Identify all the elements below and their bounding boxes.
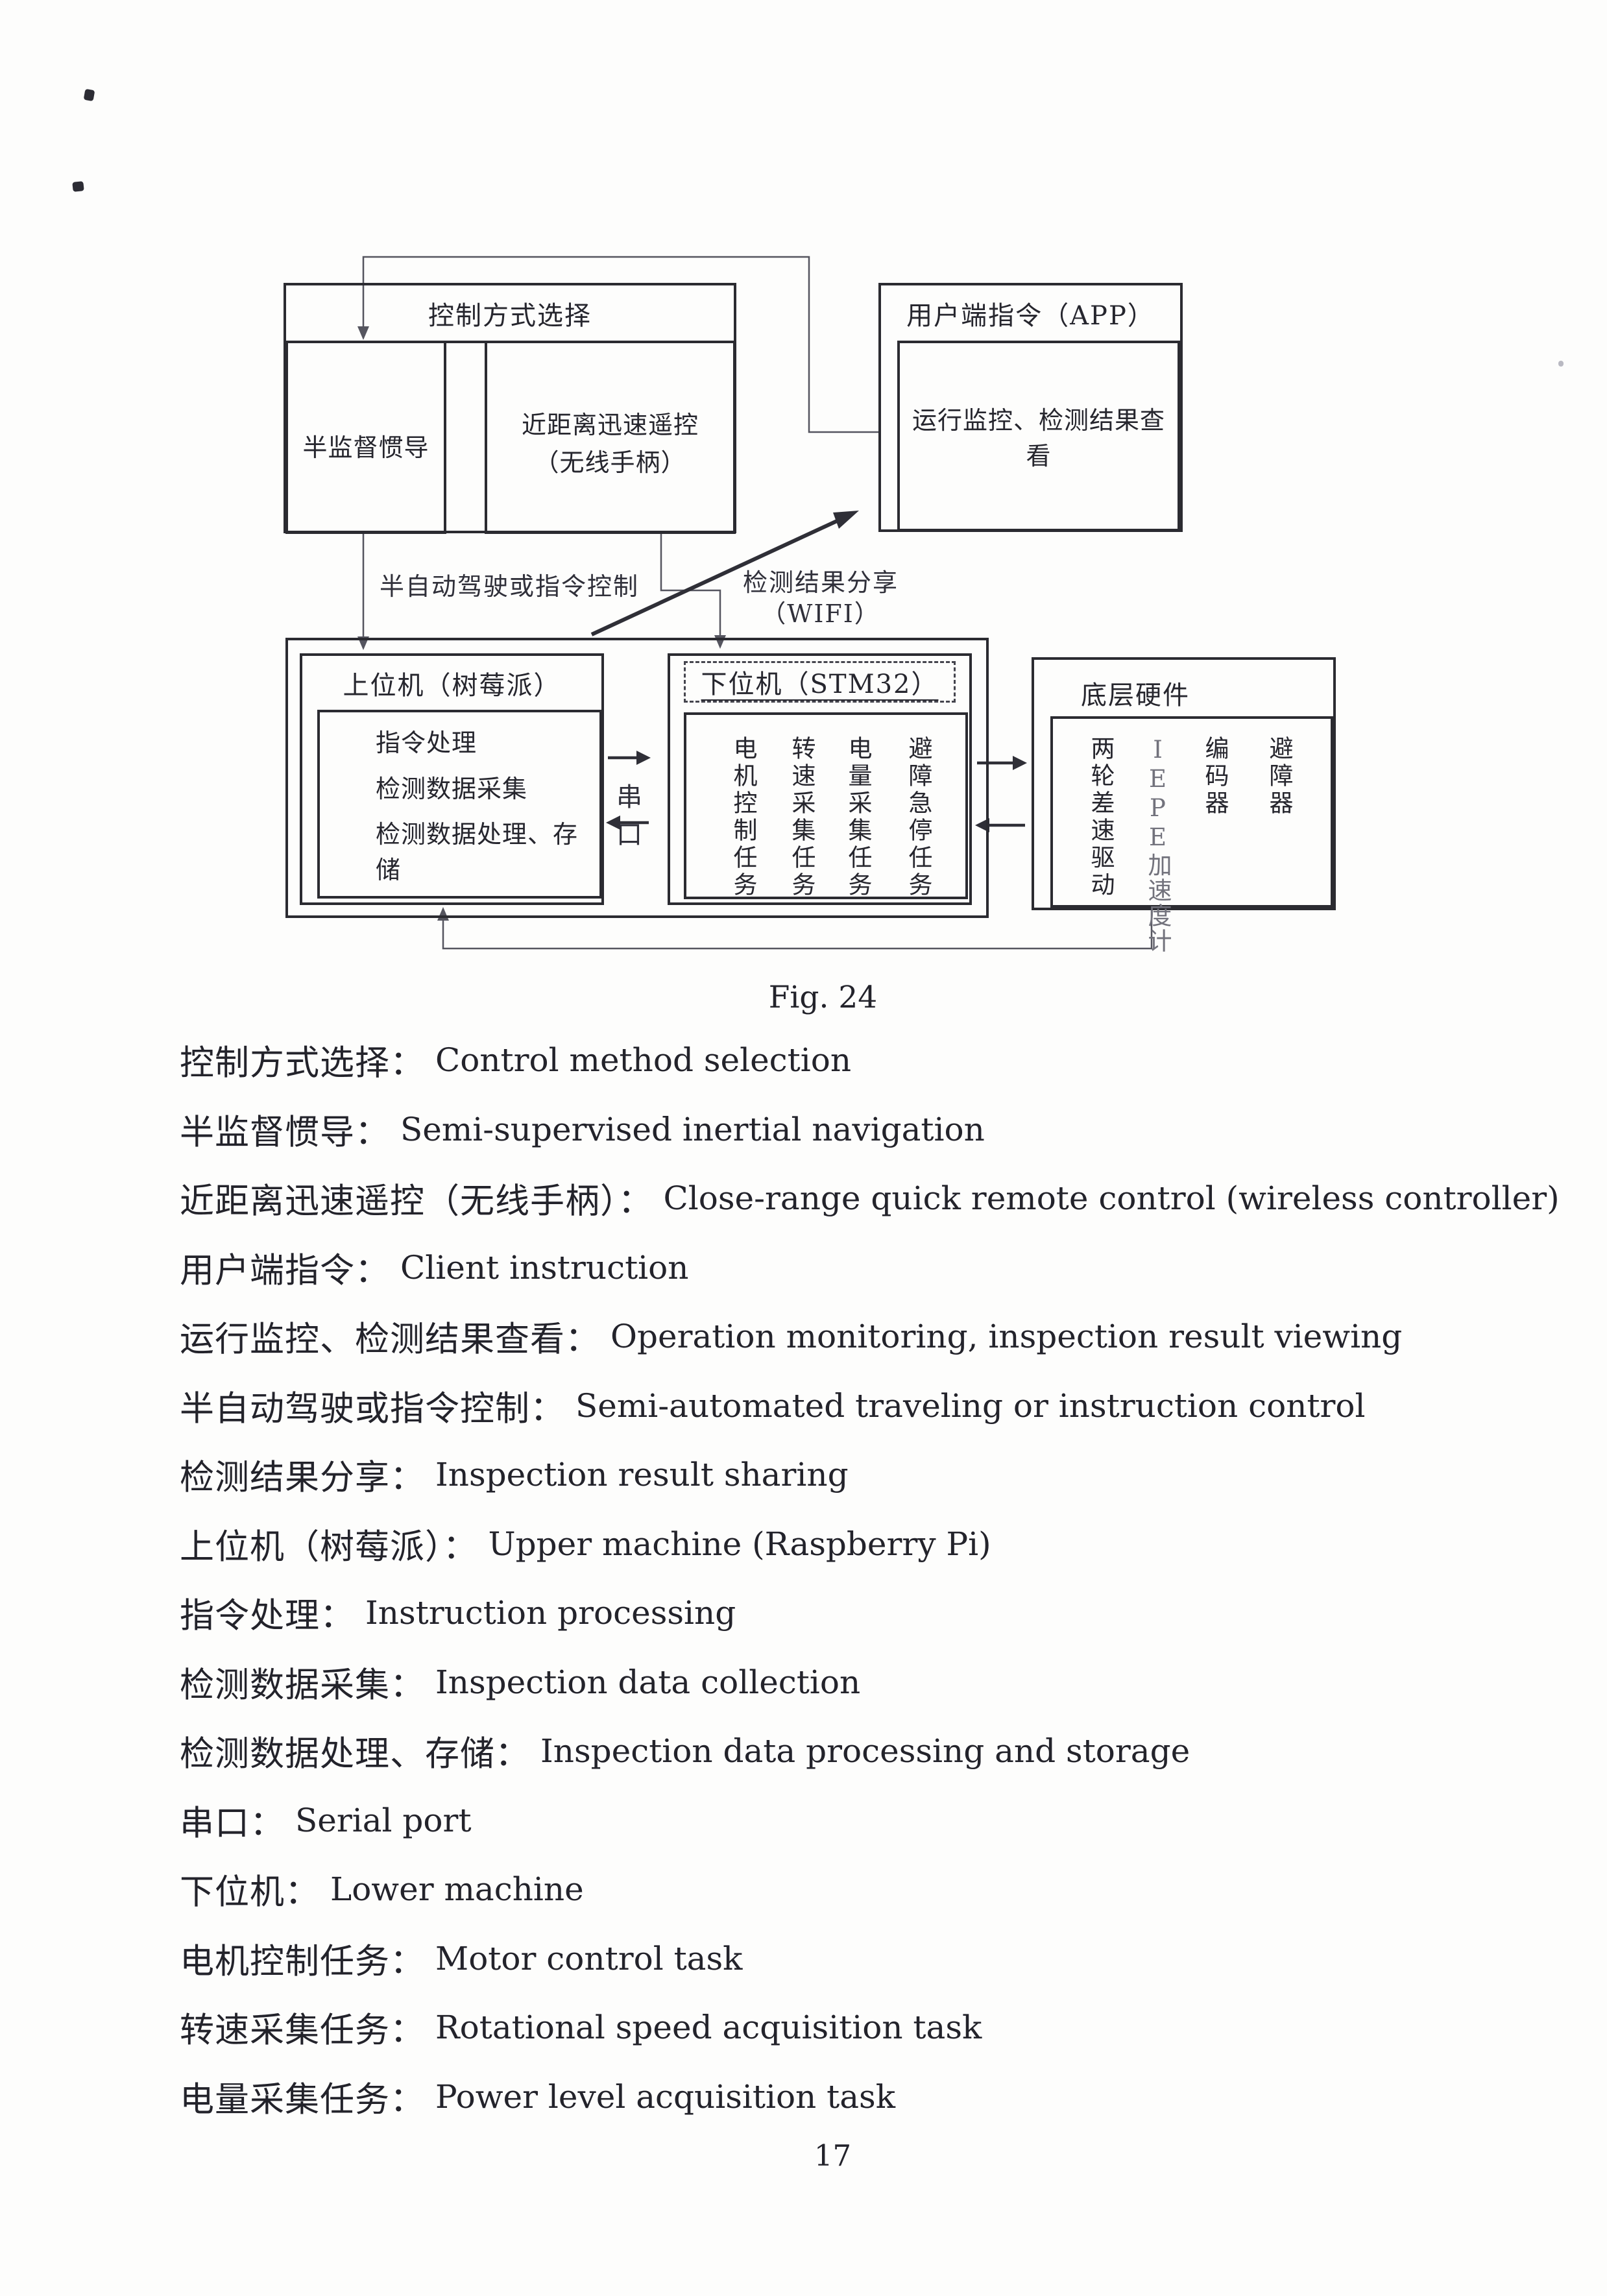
glossary-zh: 上位机（树莓派）： (180, 1519, 478, 1569)
upper-machine-inner-box: 指令处理 检测数据采集 检测数据处理、存储 (317, 710, 602, 899)
glossary-en: Lower machine (330, 1870, 584, 1908)
app-box: 用户端指令（APP） 运行监控、检测结果查看 (878, 283, 1183, 532)
glossary-row: 半自动驾驶或指令控制：Semi-automated traveling or i… (180, 1372, 1560, 1441)
glossary-row: 用户端指令：Client instruction (180, 1233, 1560, 1303)
figure-caption: Fig. 24 (19, 980, 1607, 1015)
glossary-en: Close-range quick remote control (wirele… (664, 1179, 1560, 1217)
serial-port-label: 串口 (607, 776, 653, 851)
ink-speck (84, 89, 95, 101)
glossary-row: 运行监控、检测结果查看：Operation monitoring, inspec… (180, 1302, 1560, 1372)
arrow-up-right-icon (833, 511, 859, 529)
control-method-box: 控制方式选择 半监督惯导 近距离迅速遥控 （无线手柄） (284, 283, 736, 533)
glossary-en: Inspection data processing and storage (540, 1732, 1190, 1770)
lower-machine-box: 下位机（STM32） 电机控制任务 转速采集任务 电量采集任务 避障急停任务 (668, 653, 972, 905)
glossary-zh: 控制方式选择： (180, 1035, 425, 1085)
glossary-en: Rotational speed acquisition task (435, 2009, 982, 2046)
control-method-title: 控制方式选择 (286, 285, 734, 341)
page-number: 17 (29, 2138, 1607, 2173)
glossary-zh: 检测数据采集： (180, 1658, 425, 1707)
glossary-row: 上位机（树莓派）：Upper machine (Raspberry Pi) (180, 1510, 1560, 1579)
upper-item-data-storage: 检测数据处理、存储 (376, 814, 599, 886)
lower-machine-title: 下位机（STM32） (701, 663, 939, 701)
lower-machine-inner-box: 电机控制任务 转速采集任务 电量采集任务 避障急停任务 (684, 712, 968, 899)
glossary-zh: 运行监控、检测结果查看： (180, 1312, 600, 1361)
glossary-zh: 下位机： (180, 1865, 320, 1914)
glossary-en: Operation monitoring, inspection result … (610, 1318, 1402, 1355)
remote-control-box: 近距离迅速遥控 （无线手柄） (485, 341, 736, 534)
control-method-title-row: 控制方式选择 (286, 285, 734, 343)
task-motor-control: 电机控制任务 (725, 736, 760, 899)
glossary-zh: 检测数据处理、存储： (180, 1726, 530, 1776)
ink-speck (72, 181, 84, 192)
glossary-en: Serial port (295, 1802, 472, 1839)
upper-machine-box: 上位机（树莓派） 指令处理 检测数据采集 检测数据处理、存储 (300, 653, 604, 905)
app-box-title: 用户端指令（APP） (881, 285, 1180, 341)
upper-machine-title: 上位机（树莓派） (302, 656, 601, 710)
glossary-row: 控制方式选择：Control method selection (180, 1026, 1560, 1095)
app-inner-label: 运行监控、检测结果查看 (900, 400, 1178, 472)
wifi-share-label-line2: （WIFI） (714, 598, 928, 629)
glossary-en: Control method selection (435, 1041, 851, 1079)
hardware-title: 底层硬件 (1081, 674, 1190, 712)
hw-iepe-accelerometer: IEPE加速度计 (1140, 736, 1175, 954)
lower-machine-title-box: 下位机（STM32） (684, 661, 956, 703)
remote-control-label-line1: 近距离迅速遥控 (522, 406, 699, 444)
hw-differential-drive: 两轮差速驱动 (1083, 736, 1118, 899)
wifi-share-label-line1: 检测结果分享 (714, 567, 928, 598)
glossary-row: 电机控制任务：Motor control task (180, 1924, 1560, 1994)
document-page: 控制方式选择 半监督惯导 近距离迅速遥控 （无线手柄） 用户端指令（APP） 运… (0, 0, 1607, 2296)
glossary-row: 检测数据采集：Inspection data collection (180, 1648, 1560, 1717)
arrow-right-icon (1013, 756, 1027, 770)
upper-item-data-collection: 检测数据采集 (376, 769, 599, 804)
task-power-acquisition: 电量采集任务 (840, 736, 875, 899)
hardware-box: 底层硬件 两轮差速驱动 IEPE加速度计 编码器 避障器 (1032, 657, 1336, 910)
glossary-row: 下位机：Lower machine (180, 1855, 1560, 1924)
glossary-row: 半监督惯导：Semi-supervised inertial navigatio… (180, 1095, 1560, 1165)
glossary-row: 检测结果分享：Inspection result sharing (180, 1440, 1560, 1510)
glossary-row: 指令处理：Instruction processing (180, 1578, 1560, 1648)
wifi-share-label: 检测结果分享 （WIFI） (714, 567, 928, 629)
glossary-zh: 半监督惯导： (180, 1105, 390, 1154)
glossary-zh: 半自动驾驶或指令控制： (180, 1381, 565, 1431)
glossary-zh: 检测结果分享： (180, 1450, 425, 1499)
task-obstacle-stop: 避障急停任务 (900, 736, 936, 899)
semi-auto-label: 半自动驾驶或指令控制 (363, 566, 655, 602)
ink-speck (1558, 361, 1564, 367)
task-speed-acquisition: 转速采集任务 (784, 736, 819, 899)
glossary-zh: 串口： (180, 1796, 285, 1845)
upper-item-instruction-processing: 指令处理 (376, 723, 599, 758)
glossary-row: 近距离迅速遥控（无线手柄）：Close-range quick remote c… (180, 1164, 1560, 1233)
glossary-en: Semi-supervised inertial navigation (400, 1111, 985, 1148)
remote-control-label-line2: （无线手柄） (522, 444, 699, 481)
glossary-zh: 电机控制任务： (180, 1934, 425, 1983)
glossary-en: Upper machine (Raspberry Pi) (489, 1525, 991, 1563)
glossary-zh: 转速采集任务： (180, 2003, 425, 2052)
glossary-row: 串口：Serial port (180, 1786, 1560, 1855)
glossary-zh: 电量采集任务： (180, 2072, 425, 2121)
glossary-en: Inspection result sharing (435, 1456, 849, 1493)
app-inner-box: 运行监控、检测结果查看 (897, 341, 1180, 531)
glossary-row: 检测数据处理、存储：Inspection data processing and… (180, 1717, 1560, 1786)
glossary-en: Inspection data collection (435, 1663, 860, 1701)
glossary-zh: 近距离迅速遥控（无线手柄）： (180, 1174, 653, 1223)
glossary-row: 转速采集任务：Rotational speed acquisition task (180, 1993, 1560, 2062)
glossary-en: Motor control task (435, 1940, 742, 1977)
inertial-nav-box: 半监督惯导 (285, 341, 446, 534)
glossary-zh: 用户端指令： (180, 1243, 390, 1292)
glossary: 控制方式选择：Control method selection 半监督惯导：Se… (180, 1026, 1560, 2131)
hardware-inner-box: 两轮差速驱动 IEPE加速度计 编码器 避障器 (1050, 716, 1333, 908)
glossary-zh: 指令处理： (180, 1588, 355, 1637)
inertial-nav-label: 半监督惯导 (302, 412, 429, 463)
connector-remote-to-lower (661, 533, 720, 637)
glossary-en: Power level acquisition task (435, 2078, 895, 2116)
glossary-en: Instruction processing (365, 1594, 736, 1632)
glossary-row: 电量采集任务：Power level acquisition task (180, 2062, 1560, 2132)
glossary-en: Client instruction (400, 1249, 688, 1287)
hw-encoder: 编码器 (1197, 736, 1232, 817)
hw-obstacle-avoider: 避障器 (1261, 736, 1296, 817)
glossary-en: Semi-automated traveling or instruction … (575, 1387, 1366, 1425)
